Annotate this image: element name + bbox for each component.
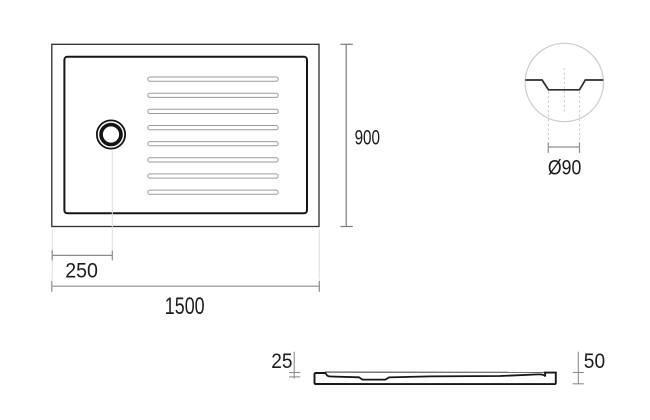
svg-text:25: 25 xyxy=(271,349,292,373)
svg-text:Ø90: Ø90 xyxy=(548,155,582,179)
svg-text:900: 900 xyxy=(355,126,381,150)
svg-text:50: 50 xyxy=(584,349,605,373)
svg-text:250: 250 xyxy=(65,259,98,283)
svg-text:1500: 1500 xyxy=(165,293,205,320)
